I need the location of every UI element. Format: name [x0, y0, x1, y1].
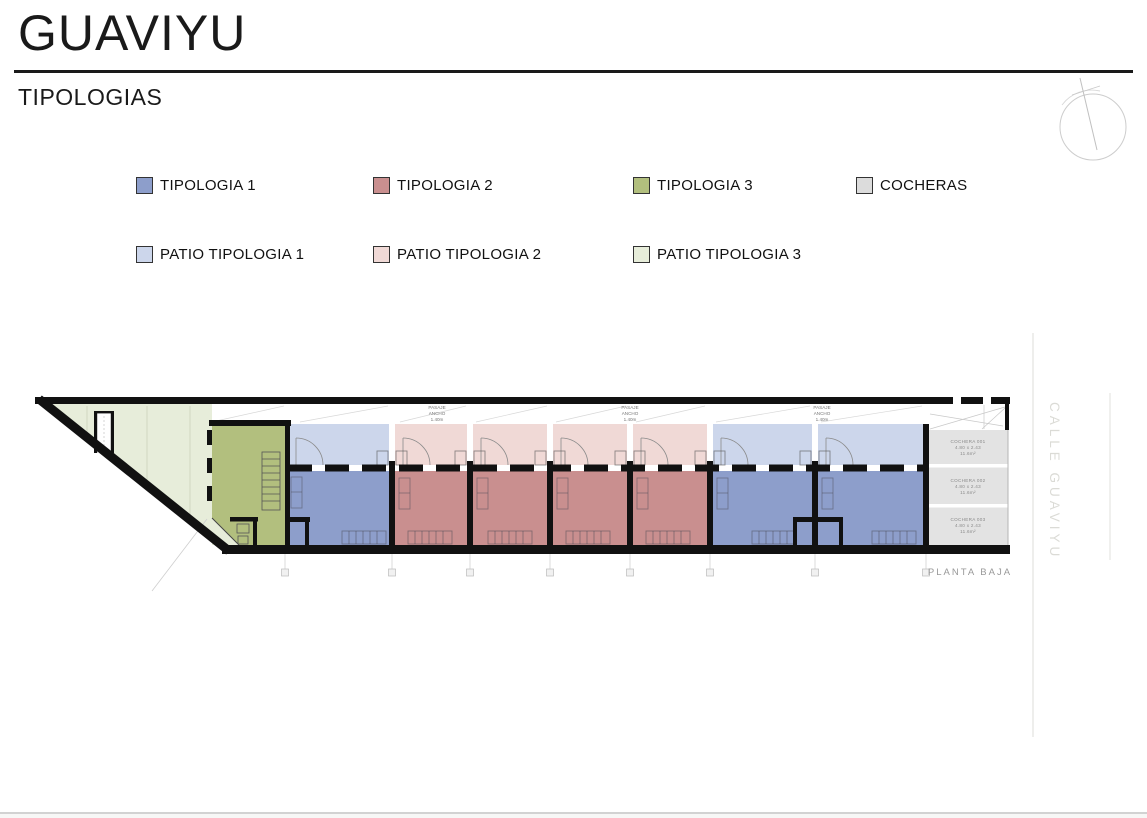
- svg-text:4.80 x 2.43: 4.80 x 2.43: [955, 484, 981, 489]
- patio-tipologia-3-area: [41, 404, 227, 591]
- svg-text:1.40m: 1.40m: [431, 417, 444, 422]
- unit-t3: [207, 420, 291, 548]
- svg-text:ANCHO: ANCHO: [622, 411, 639, 416]
- dashed-left-wall: [207, 430, 212, 501]
- patio-t1-c: [818, 424, 923, 465]
- svg-text:4.80 x 2.43: 4.80 x 2.43: [955, 523, 981, 528]
- bottom-strip: [0, 814, 1147, 818]
- unit-t2-b: [473, 471, 547, 545]
- patio-t1-b: [713, 424, 812, 465]
- svg-text:1.40m: 1.40m: [624, 417, 637, 422]
- patio-t2-c: [553, 424, 627, 465]
- patio-t2-d: [633, 424, 707, 465]
- svg-text:1.40m: 1.40m: [816, 417, 829, 422]
- presentation-sheet: GUAVIYU TIPOLOGIAS TIPOLOGIA 1 TIPOLOGIA…: [0, 0, 1147, 818]
- patio-t2-a: [395, 424, 467, 465]
- unit-t2-d: [633, 471, 707, 545]
- svg-text:PASAJE: PASAJE: [621, 405, 638, 410]
- svg-text:PASAJE: PASAJE: [428, 405, 445, 410]
- svg-text:COCHERA 002: COCHERA 002: [951, 478, 986, 483]
- dimension-markers: [282, 554, 930, 576]
- north-compass-icon: [1060, 78, 1126, 160]
- svg-text:11.6m²: 11.6m²: [960, 451, 976, 456]
- floor-label: PLANTA BAJA: [928, 567, 1012, 578]
- street: CALLE GUAVIYU: [1033, 333, 1110, 737]
- svg-text:ANCHO: ANCHO: [814, 411, 831, 416]
- street-label: CALLE GUAVIYU: [1047, 402, 1062, 560]
- unit-t2-a: [395, 471, 467, 545]
- svg-text:4.80 x 2.43: 4.80 x 2.43: [955, 445, 981, 450]
- pasaje-label-1: PASAJE ANCHO 1.40m: [428, 405, 445, 422]
- pasaje-label-2: PASAJE ANCHO 1.40m: [621, 405, 638, 422]
- pasaje-label-3: PASAJE ANCHO 1.40m: [813, 405, 830, 422]
- svg-text:COCHERA 003: COCHERA 003: [951, 517, 986, 522]
- svg-text:ANCHO: ANCHO: [429, 411, 446, 416]
- patio-t1-a: [288, 424, 389, 465]
- svg-text:11.6m²: 11.6m²: [960, 529, 976, 534]
- unit-t1-a: [288, 471, 389, 545]
- patio-t2-b: [473, 424, 547, 465]
- unit-patios: [288, 424, 923, 465]
- driveway-lines: [930, 400, 1005, 429]
- cocheras-area: COCHERA 001 4.80 x 2.43 11.6m² COCHERA 0…: [929, 397, 1009, 546]
- floor-plan-drawing: COCHERA 001 4.80 x 2.43 11.6m² COCHERA 0…: [0, 0, 1147, 818]
- unit-t2-c: [553, 471, 627, 545]
- svg-text:11.6m²: 11.6m²: [960, 490, 976, 495]
- svg-text:PASAJE: PASAJE: [813, 405, 830, 410]
- svg-text:COCHERA 001: COCHERA 001: [951, 439, 986, 444]
- unit-interiors: [288, 471, 923, 546]
